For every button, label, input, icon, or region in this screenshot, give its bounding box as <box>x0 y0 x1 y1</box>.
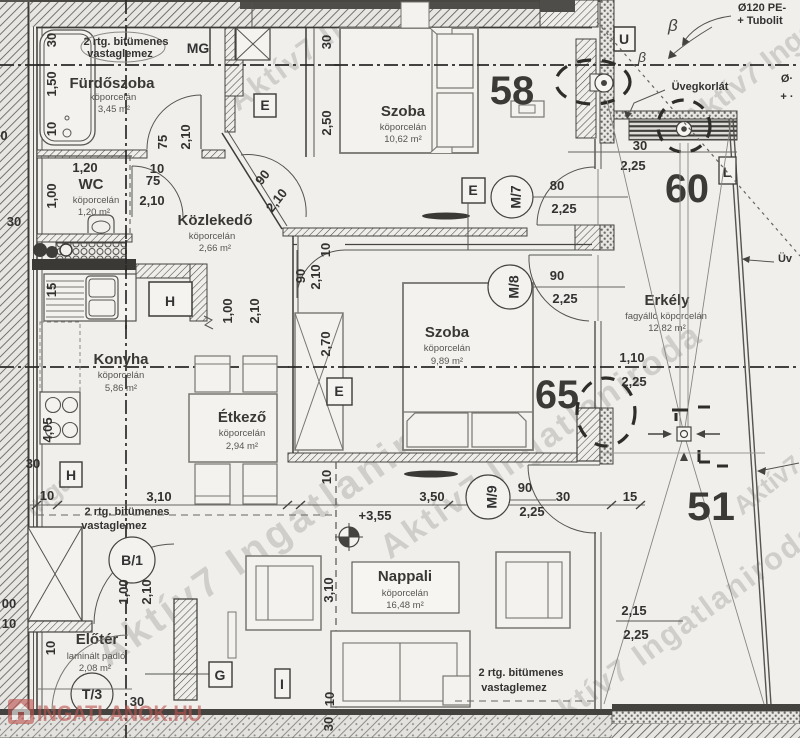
svg-text:Fürdőszoba: Fürdőszoba <box>70 75 156 92</box>
svg-text:1,00: 1,00 <box>220 298 235 323</box>
svg-text:0: 0 <box>0 128 7 143</box>
svg-text:2,10: 2,10 <box>308 264 323 289</box>
svg-text:Közlekedő: Közlekedő <box>177 212 252 229</box>
svg-text:1,00: 1,00 <box>44 183 59 208</box>
svg-text:90: 90 <box>518 480 532 495</box>
svg-text:00: 00 <box>2 596 16 611</box>
svg-text:H: H <box>165 293 175 309</box>
svg-text:β: β <box>637 49 646 65</box>
svg-text:2,66 m²: 2,66 m² <box>199 243 231 254</box>
svg-text:T/3: T/3 <box>82 686 102 702</box>
svg-text:75: 75 <box>155 135 170 149</box>
svg-text:Szoba: Szoba <box>381 103 426 120</box>
svg-text:3,45 m²: 3,45 m² <box>98 104 130 115</box>
svg-text:2,10: 2,10 <box>139 193 164 208</box>
svg-text:2,25: 2,25 <box>620 158 645 173</box>
svg-text:Erkély: Erkély <box>644 292 690 309</box>
svg-text:2,25: 2,25 <box>552 291 577 306</box>
svg-text:15: 15 <box>44 283 59 297</box>
svg-text:10,62 m²: 10,62 m² <box>384 134 422 145</box>
svg-text:2,08 m²: 2,08 m² <box>79 663 111 674</box>
svg-text:M/8: M/8 <box>506 275 522 299</box>
svg-text:köporcelán: köporcelán <box>219 428 265 439</box>
svg-text:1,20 m²: 1,20 m² <box>78 207 110 218</box>
svg-text:10: 10 <box>319 470 334 484</box>
svg-text:75: 75 <box>146 173 160 188</box>
svg-text:Üvegkorlát: Üvegkorlát <box>672 80 729 93</box>
svg-text:E: E <box>260 97 269 113</box>
svg-text:2,25: 2,25 <box>621 374 646 389</box>
svg-text:Előtér: Előtér <box>76 631 119 648</box>
svg-text:60: 60 <box>665 167 709 211</box>
svg-text:+3,55: +3,55 <box>359 508 392 523</box>
svg-text:2,50: 2,50 <box>319 110 334 135</box>
svg-text:Ø·: Ø· <box>781 73 793 85</box>
svg-text:köporcelán: köporcelán <box>98 370 144 381</box>
svg-text:10: 10 <box>43 641 58 655</box>
svg-text:10: 10 <box>322 692 337 706</box>
svg-text:köporcelán: köporcelán <box>424 343 470 354</box>
svg-text:+ ·: + · <box>780 91 793 103</box>
svg-text:30: 30 <box>26 456 40 471</box>
svg-text:vastaglemez: vastaglemez <box>81 520 147 532</box>
svg-text:fagyálló köporcelán: fagyálló köporcelán <box>625 311 707 322</box>
svg-text:90: 90 <box>550 268 564 283</box>
svg-text:15: 15 <box>623 489 637 504</box>
svg-text:+ Tubolit: + Tubolit <box>737 15 783 27</box>
svg-text:I: I <box>280 676 284 692</box>
svg-text:Szoba: Szoba <box>425 324 470 341</box>
svg-text:2,10: 2,10 <box>139 579 154 604</box>
svg-text:vastaglemez: vastaglemez <box>481 682 547 694</box>
svg-text:65: 65 <box>535 373 579 417</box>
svg-text:9,89 m²: 9,89 m² <box>431 356 463 367</box>
svg-text:2,70: 2,70 <box>318 331 333 356</box>
svg-text:2,25: 2,25 <box>551 201 576 216</box>
svg-text:51: 51 <box>687 485 735 529</box>
svg-text:U: U <box>619 31 629 47</box>
svg-text:INGATLANOK.HU: INGATLANOK.HU <box>37 701 202 726</box>
svg-text:3,50: 3,50 <box>419 489 444 504</box>
svg-text:B/1: B/1 <box>121 552 143 568</box>
svg-text:2 rtg. bitümenes: 2 rtg. bitümenes <box>85 506 170 518</box>
svg-text:2 rtg. bitümenes: 2 rtg. bitümenes <box>479 667 564 679</box>
svg-text:1,50: 1,50 <box>44 71 59 96</box>
svg-text:2,25: 2,25 <box>623 627 648 642</box>
svg-text:30: 30 <box>321 717 336 731</box>
svg-text:80: 80 <box>550 178 564 193</box>
svg-text:30: 30 <box>556 489 570 504</box>
svg-text:2,15: 2,15 <box>621 603 646 618</box>
svg-text:3,10: 3,10 <box>146 489 171 504</box>
svg-text:10: 10 <box>40 488 54 503</box>
svg-text:2,10: 2,10 <box>178 124 193 149</box>
svg-text:2,25: 2,25 <box>519 504 544 519</box>
svg-text:58: 58 <box>490 69 535 113</box>
svg-text:MG: MG <box>187 40 210 56</box>
svg-text:E: E <box>468 182 477 198</box>
svg-text:köporcelán: köporcelán <box>90 92 136 103</box>
svg-text:köporcelán: köporcelán <box>189 231 235 242</box>
svg-text:30: 30 <box>7 214 21 229</box>
svg-text:2,10: 2,10 <box>247 298 262 323</box>
svg-text:WC: WC <box>79 176 104 193</box>
svg-text:30: 30 <box>319 35 334 49</box>
svg-text:M/9: M/9 <box>484 485 500 509</box>
svg-text:10: 10 <box>318 243 333 257</box>
svg-text:5,86 m²: 5,86 m² <box>105 383 137 394</box>
svg-text:3,10: 3,10 <box>321 577 336 602</box>
svg-text:G: G <box>215 667 226 683</box>
svg-text:10: 10 <box>44 122 59 136</box>
svg-text:10: 10 <box>2 616 16 631</box>
svg-text:30: 30 <box>44 33 59 47</box>
svg-text:2,94 m²: 2,94 m² <box>226 441 258 452</box>
svg-text:β: β <box>667 16 678 35</box>
svg-text:vastaglemez: vastaglemez <box>87 48 153 60</box>
svg-text:köporcelán: köporcelán <box>380 122 426 133</box>
svg-text:H: H <box>66 467 76 483</box>
svg-text:Konyha: Konyha <box>93 351 149 368</box>
svg-text:Nappali: Nappali <box>378 568 432 585</box>
svg-text:Étkező: Étkező <box>218 409 266 426</box>
svg-text:köporcelán: köporcelán <box>382 588 428 599</box>
svg-text:16,48 m²: 16,48 m² <box>386 600 424 611</box>
svg-text:Ø120 PE-: Ø120 PE- <box>738 2 787 14</box>
svg-text:1,00: 1,00 <box>116 579 131 604</box>
svg-text:M/7: M/7 <box>508 185 524 209</box>
svg-text:30: 30 <box>633 138 647 153</box>
svg-text:4,05: 4,05 <box>40 417 55 442</box>
svg-text:2 rtg. bitümenes: 2 rtg. bitümenes <box>84 36 169 48</box>
svg-text:Üv: Üv <box>778 252 793 265</box>
svg-text:1,10: 1,10 <box>619 350 644 365</box>
svg-text:E: E <box>334 383 343 399</box>
svg-text:90: 90 <box>293 269 308 283</box>
svg-text:köporcelán: köporcelán <box>73 195 119 206</box>
svg-text:1,20: 1,20 <box>72 160 97 175</box>
